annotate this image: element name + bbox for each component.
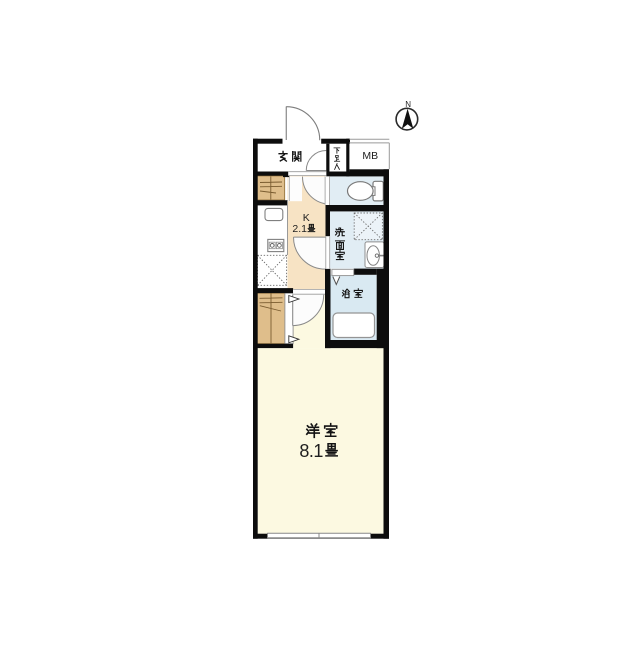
svg-text:2.1: 2.1 (292, 223, 307, 235)
svg-text:8.1: 8.1 (299, 441, 323, 461)
svg-text:MB: MB (362, 150, 378, 162)
